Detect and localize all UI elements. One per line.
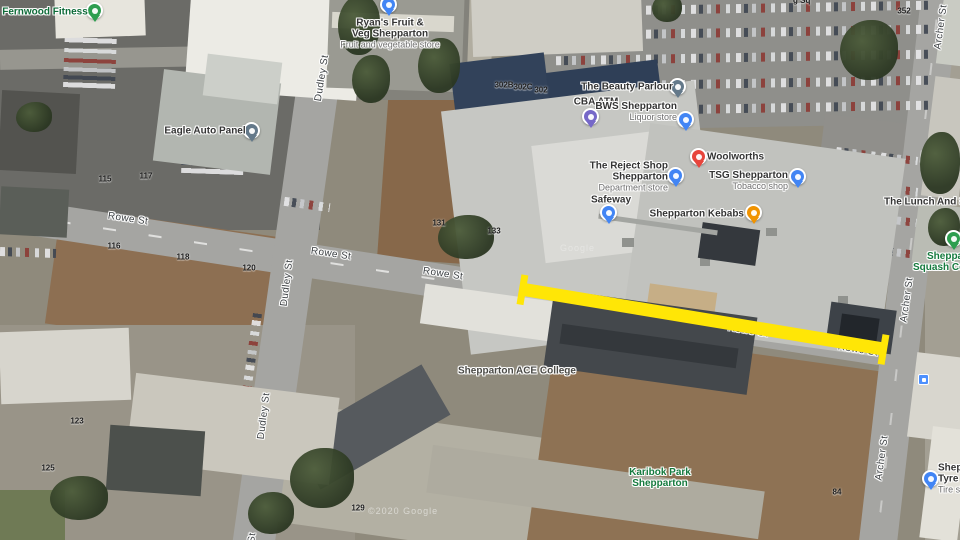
poi-subtitle: Tobacco shop — [709, 181, 788, 192]
map-pin-safeway[interactable] — [600, 204, 617, 221]
building-roof — [106, 425, 205, 496]
poi-line: Shepparton — [629, 478, 691, 489]
tree — [16, 102, 52, 132]
poi-line: Shepparton — [927, 251, 960, 262]
poi-label-tyre[interactable]: Shepp Tyre Tire sh — [938, 463, 960, 496]
carport-roof — [0, 186, 69, 237]
building-roof — [471, 0, 643, 57]
lot-number: 129 — [351, 504, 364, 513]
poi-line: Shepp — [938, 463, 960, 474]
poi-label-reject-shop[interactable]: The Reject Shop Shepparton Department st… — [590, 161, 668, 194]
poi-label-bws[interactable]: BWS Shepparton Liquor store — [595, 101, 677, 123]
poi-line: Shepparton — [590, 172, 668, 183]
poi-label-woolworths[interactable]: Woolworths — [707, 152, 764, 163]
tree — [840, 20, 898, 80]
tree — [248, 492, 294, 534]
tree — [50, 476, 108, 520]
map-pin-squash[interactable] — [945, 230, 960, 247]
poi-line: Tyre — [938, 474, 960, 485]
map-pin-tsg[interactable] — [789, 168, 806, 185]
lot-number: 125 — [41, 464, 54, 473]
building-roof — [0, 328, 131, 404]
poi-line: Ryan's Fruit & — [340, 18, 440, 29]
map-attribution: ©2020 Google — [368, 506, 438, 516]
poi-label-eagle[interactable]: Eagle Auto Panel — [164, 126, 245, 137]
lot-number: 117 — [140, 172, 153, 181]
poi-line: The Reject Shop — [590, 161, 668, 172]
poi-subtitle: Department store — [590, 183, 668, 194]
map-pin-bws[interactable] — [677, 111, 694, 128]
poi-line: Squash Cen — [913, 262, 960, 273]
lot-number: 116 — [108, 242, 121, 251]
lot-number: 302C — [513, 83, 532, 92]
map-watermark: Google — [560, 243, 595, 253]
poi-label-beauty[interactable]: The Beauty Parlour — [581, 82, 673, 93]
poi-label-karibok[interactable]: Karibok Park Shepparton — [629, 467, 691, 489]
clipped-label: g Sq — [793, 0, 810, 5]
map-pin-woolworths[interactable] — [690, 148, 707, 165]
parked-cars — [0, 247, 56, 258]
lot-number: 123 — [70, 417, 83, 426]
poi-label-lunch[interactable]: The Lunch And Sn — [884, 197, 960, 208]
parked-cars — [63, 29, 117, 89]
poi-subtitle: Liquor store — [595, 112, 677, 123]
poi-line: TSG Shepparton — [709, 170, 788, 181]
lot-number: 84 — [833, 488, 842, 497]
poi-line: Karibok Park — [629, 467, 691, 478]
poi-label-ryans[interactable]: Ryan's Fruit & Veg Shepparton Fruit and … — [340, 18, 440, 51]
lot-number: 133 — [487, 227, 500, 236]
poi-line: Veg Shepparton — [340, 29, 440, 40]
satellite-map[interactable]: Rowe St Rowe St Rowe St Rowe St Rowe St … — [0, 0, 960, 540]
lot-number: 302 — [534, 86, 547, 95]
lot-number: 120 — [242, 264, 255, 273]
map-pin-tyre[interactable] — [922, 470, 939, 487]
poi-line: BWS Shepparton — [595, 101, 677, 112]
bus-stop-icon[interactable] — [918, 374, 929, 385]
building-roof — [203, 54, 283, 105]
tree — [352, 55, 390, 103]
poi-subtitle: Fruit and vegetable store — [340, 40, 440, 51]
tree — [438, 215, 494, 259]
map-pin-reject-shop[interactable] — [667, 167, 684, 184]
lot-number: 302B — [494, 81, 513, 90]
tree — [920, 132, 960, 194]
roof-vent — [622, 238, 634, 247]
poi-label-ace-college[interactable]: Shepparton ACE College — [458, 366, 576, 377]
poi-label-fernwood[interactable]: Fernwood Fitness — [2, 7, 88, 18]
poi-label-kebabs[interactable]: Shepparton Kebabs — [650, 209, 744, 220]
poi-subtitle: Tire sh — [938, 485, 960, 496]
map-pin-kebabs[interactable] — [745, 204, 762, 221]
poi-label-tsg[interactable]: TSG Shepparton Tobacco shop — [709, 170, 788, 192]
lot-number: 115 — [99, 175, 112, 184]
poi-label-safeway[interactable]: Safeway — [591, 195, 631, 206]
lot-number: 352 — [897, 7, 910, 16]
lot-number: 131 — [432, 219, 445, 228]
tree — [290, 448, 354, 508]
lot-number: 118 — [177, 253, 190, 262]
poi-label-squash[interactable]: Shepparton Squash Cen — [913, 251, 960, 273]
roof-vent — [766, 228, 777, 236]
map-pin-fernwood[interactable] — [86, 2, 103, 19]
